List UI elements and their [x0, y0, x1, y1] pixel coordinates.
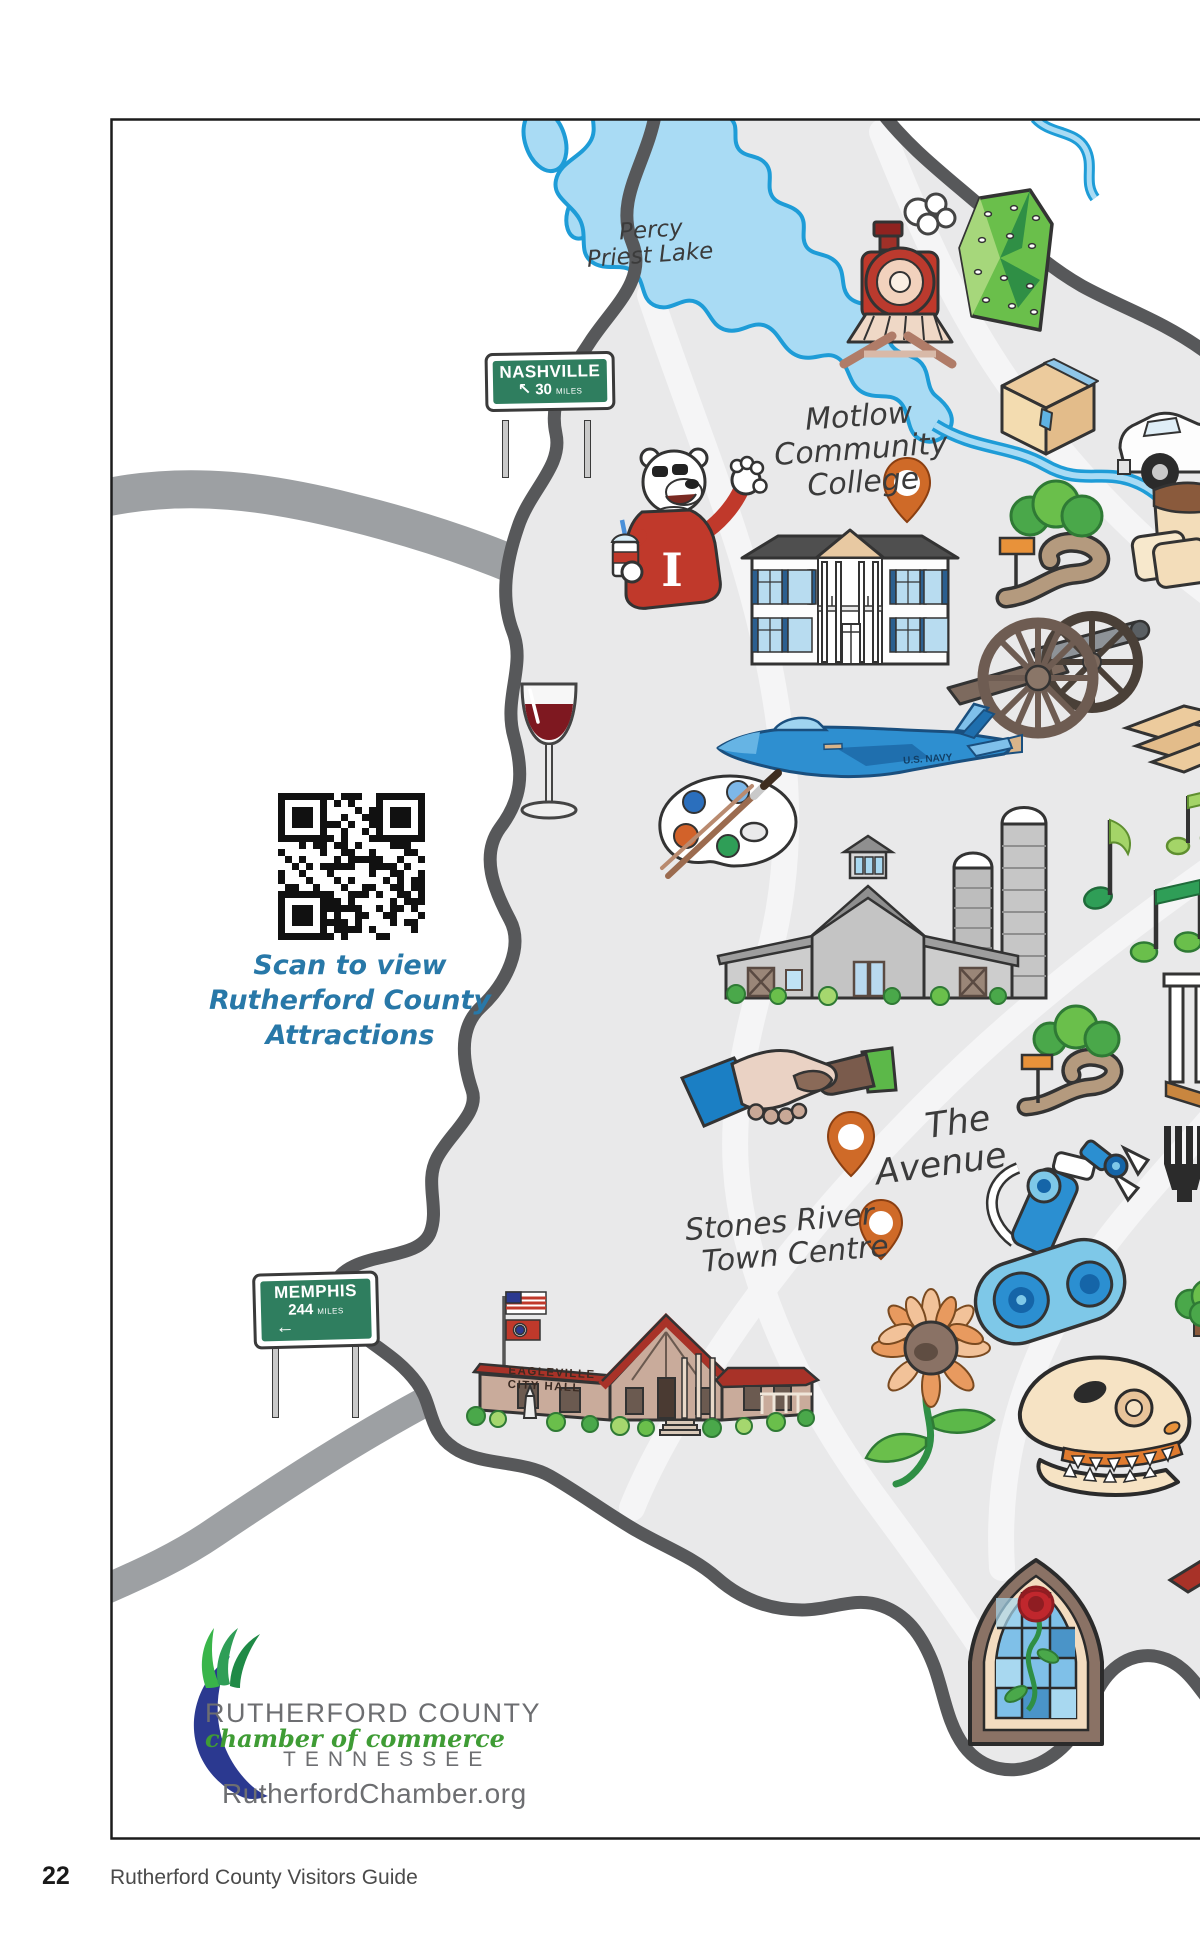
visitors-guide-page: I U.S. NAVY	[0, 0, 1200, 1949]
guide-title: Rutherford County Visitors Guide	[110, 1866, 418, 1890]
memphis-sign: MEMPHIS 244 MILES ←	[252, 1270, 380, 1350]
climbing-wall-icon	[960, 190, 1052, 330]
nashville-sign-distance: 30	[535, 382, 552, 399]
memphis-sign-city: MEMPHIS	[266, 1282, 364, 1303]
mascot-letter: I	[661, 543, 683, 597]
page-number: 22	[42, 1862, 70, 1891]
arrow-left-icon: ←	[267, 1317, 365, 1337]
nashville-sign: NASHVILLE ↖ 30 MILES	[484, 351, 615, 412]
gazebo-columns-icon	[1164, 974, 1200, 1114]
memphis-sign-post-right	[352, 1346, 359, 1418]
nashville-sign-city: NASHVILLE	[499, 362, 601, 382]
highway-road-lower	[104, 1396, 436, 1590]
logo-state: TENNESSEE	[283, 1748, 491, 1772]
label-motlow-community-college: Motlow Community College	[753, 393, 969, 506]
qr-caption: Scan to view Rutherford County Attractio…	[208, 948, 492, 1053]
arrow-up-left-icon: ↖	[518, 382, 532, 398]
mansion-icon	[742, 530, 958, 664]
nashville-sign-unit: MILES	[556, 387, 583, 396]
memphis-sign-post-left	[272, 1346, 279, 1418]
nashville-sign-post-right	[584, 420, 591, 478]
qr-code	[278, 793, 425, 940]
label-percy-priest-lake: Percy Priest Lake	[584, 213, 727, 273]
memphis-sign-unit: MILES	[317, 1307, 344, 1316]
label-eagleville-city-hall: EAGLEVILLE CITY HALL	[507, 1364, 596, 1397]
county-map-artwork: I U.S. NAVY	[0, 0, 1200, 1949]
nashville-sign-post-left	[502, 420, 509, 478]
trex-skull-icon	[1020, 1358, 1190, 1495]
logo-website: RutherfordChamber.org	[222, 1778, 527, 1810]
